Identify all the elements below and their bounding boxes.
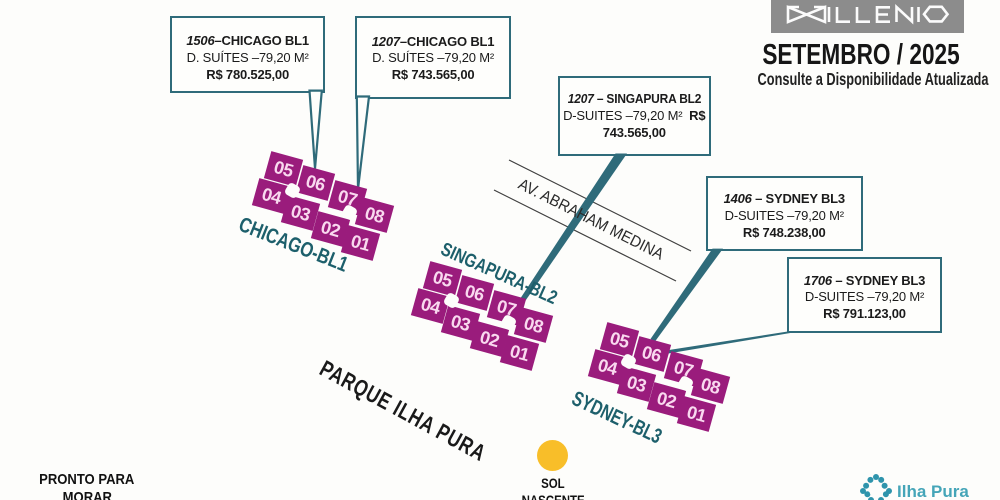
svg-text:Ilha Pura: Ilha Pura	[897, 482, 969, 500]
